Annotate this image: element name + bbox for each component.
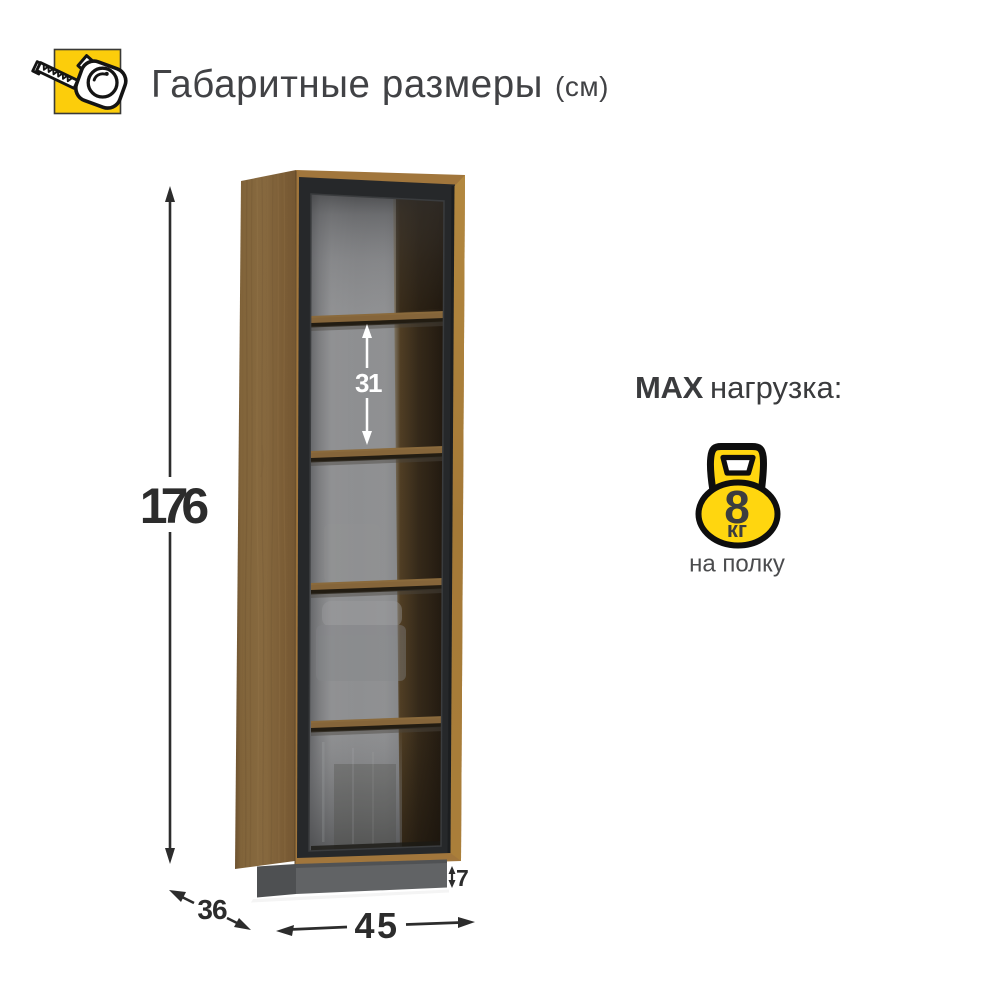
- svg-text:Габаритные размеры: Габаритные размеры: [151, 63, 543, 106]
- svg-text:на полку: на полку: [689, 551, 785, 578]
- svg-text:кг: кг: [727, 517, 747, 542]
- svg-text:7: 7: [456, 865, 469, 891]
- svg-text:45: 45: [354, 905, 399, 946]
- svg-text:MAX: MAX: [635, 370, 704, 405]
- svg-text:176: 176: [140, 478, 208, 534]
- svg-text:(см): (см): [555, 71, 609, 102]
- svg-text:нагрузка:: нагрузка:: [710, 370, 842, 405]
- svg-text:36: 36: [197, 894, 227, 925]
- svg-text:31: 31: [355, 368, 382, 398]
